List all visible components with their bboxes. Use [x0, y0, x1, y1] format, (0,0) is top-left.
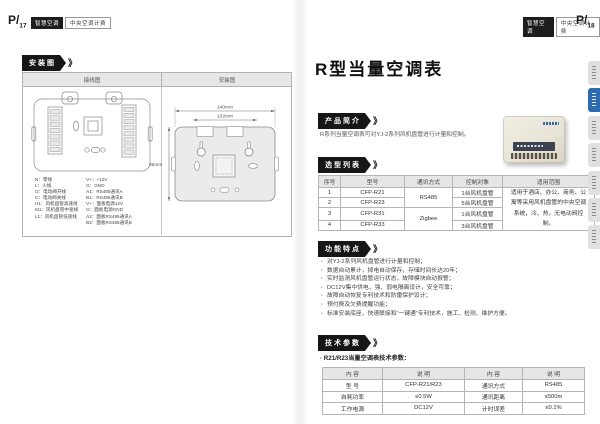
intro-text: R系列当量空调表可对YJ-2系列风机盘管进行计量和控制。: [320, 129, 500, 138]
table-row: 工作电源 DC12V 计时误差 ≤0.1%: [323, 403, 585, 415]
cell-comm: Zigbee: [405, 208, 453, 231]
legend-column-right: V+：+12V G：GND A1：RS485通讯A B1：RS485通讯B V+…: [86, 177, 132, 226]
cell: 工作电源: [323, 403, 383, 415]
side-tab-rail: [588, 61, 600, 249]
feature-item: 标准安装底座，快速联接和“一键通”专利技术，施工、检测、维护方便。: [321, 310, 589, 319]
selection-table: 序号 型号 通讯方式 控制对象 适用范围 1 CFP-R21 RS485 1台风…: [318, 175, 595, 231]
catalog-spread: P/17 智慧空调 中央空调计费 智慧空调 中央空调计费 P/18 安装图 》 …: [0, 0, 600, 424]
cell-model: CFP-R23: [341, 198, 405, 208]
table-row: 1 CFP-R21 RS485 1台风机盘管 适用于酒店、办公、商务、公寓等采用…: [319, 188, 595, 198]
legend-item: L1：风机盘管低速线: [35, 214, 78, 220]
legend-column-left: N：零线 L：火线 O：电动阀开线 C：电动阀关线 H1：风机盘管高速线 M1：…: [35, 177, 78, 226]
side-tab: [588, 198, 600, 222]
chevron-icon: 》: [373, 339, 382, 348]
cell: CFP-R21/R23: [383, 380, 465, 392]
section-tag-selection: 选型列表 》: [318, 157, 382, 173]
col-header: 控制对象: [453, 176, 503, 188]
feature-item: 实时监测风机盘管运行状态，故障模块自动报警；: [321, 275, 589, 284]
right-page-number: P/18: [576, 13, 595, 29]
cell-comm: RS485: [405, 188, 453, 208]
panel-header: 接线图 安装图: [23, 73, 291, 87]
cell-no: 1: [319, 188, 341, 198]
page-label: P/: [576, 13, 587, 27]
wiring-legend: N：零线 L：火线 O：电动阀开线 C：电动阀关线 H1：风机盘管高速线 M1：…: [35, 177, 132, 226]
cell-scope: 适用于酒店、办公、商务、公寓等采用风机盘管的中央空调系统，冷、热，无电动阀控制。: [503, 188, 595, 231]
feature-item: 预付费及欠费提醒功能；: [321, 301, 589, 310]
cell-no: 4: [319, 220, 341, 230]
left-header-badges: 智慧空调 中央空调计费: [31, 17, 111, 29]
specs-subtitle: · R21/R23当量空调表技术参数：: [320, 353, 410, 362]
side-tab: [588, 116, 600, 140]
category-badge: 智慧空调: [523, 17, 554, 37]
section-tag-label: 选型列表: [318, 157, 371, 173]
section-tag-features: 功能特点 》: [318, 241, 382, 257]
chevron-icon: 》: [373, 117, 382, 126]
cell: 自耗功率: [323, 391, 383, 403]
section-tag-label: 技术参数: [318, 335, 371, 351]
cell: RS485: [523, 380, 585, 392]
cell-model: CFP-R33: [341, 220, 405, 230]
section-tag-intro: 产品简介 》: [318, 113, 382, 129]
specs-table: 内 容 说 明 内 容 说 明 型 号 CFP-R21/R23 通讯方式 RS4…: [322, 367, 585, 415]
page-num: 17: [19, 22, 26, 29]
col-header: 内 容: [323, 368, 383, 380]
left-page-number: P/17: [8, 13, 27, 29]
cell-target: 1台风机盘管: [453, 208, 503, 221]
page-label: P/: [8, 13, 19, 27]
section-tag-label: 产品简介: [318, 113, 371, 129]
feature-list: 对YJ-2系列风机盘管进行计量和控制； 数据自动累计，掉电自动保存，存储时间长达…: [321, 258, 589, 318]
section-tag-specs: 技术参数 》: [318, 335, 382, 351]
section-tag-label: 安装图: [22, 55, 66, 71]
svg-text:102mm: 102mm: [217, 114, 233, 120]
terminal-strip: [511, 153, 557, 159]
side-tab: [588, 225, 600, 249]
col-header: 适用范围: [503, 176, 595, 188]
side-tab: [588, 143, 600, 167]
page-title: R型当量空调表: [315, 55, 443, 80]
category-badge: 智慧空调: [31, 17, 63, 29]
panel-col-header: 安装图: [162, 73, 292, 86]
wiring-diagram: [31, 90, 153, 181]
product-nameplate: [513, 142, 555, 151]
table-header-row: 内 容 说 明 内 容 说 明: [323, 368, 585, 380]
chevron-icon: 》: [68, 59, 77, 68]
svg-text:86mm: 86mm: [149, 162, 162, 168]
chevron-icon: 》: [373, 161, 382, 170]
cell-model: CFP-R31: [341, 208, 405, 221]
chevron-icon: 》: [373, 245, 382, 254]
feature-item: DC12V集中供电，强、弱电隔离设计，安全可靠；: [321, 284, 589, 293]
section-tag-installation: 安装图 》: [22, 55, 77, 71]
side-tab: [588, 171, 600, 195]
svg-text:140mm: 140mm: [217, 105, 233, 111]
mounting-diagram: 140mm 102mm 86mm: [149, 93, 289, 220]
cell-target: 5台风机盘管: [453, 198, 503, 208]
cell: ≤0.1%: [523, 403, 585, 415]
installation-panel: 接线图 安装图: [22, 72, 292, 237]
table-row: 自耗功率 ≤0.5W 通讯距离 ≤500m: [323, 391, 585, 403]
legend-item: B2：面板RS485通讯B: [86, 220, 132, 226]
cell-target: 1台风机盘管: [453, 188, 503, 198]
cell: 计时误差: [465, 403, 523, 415]
feature-item: 数据自动累计，掉电自动保存，存储时间长达20年；: [321, 267, 589, 276]
cell: 通讯距离: [465, 391, 523, 403]
cell: ≤0.5W: [383, 391, 465, 403]
feature-item: 故障自动恢复专利技术和防雷保护设计；: [321, 292, 589, 301]
page-num: 18: [587, 22, 594, 29]
col-header: 型号: [341, 176, 405, 188]
cell-target: 3台风机盘管: [453, 220, 503, 230]
table-row: 型 号 CFP-R21/R23 通讯方式 RS485: [323, 380, 585, 392]
side-tab-active: [588, 88, 600, 112]
product-photo: [503, 116, 565, 163]
page-fold: [291, 0, 309, 424]
col-header: 序号: [319, 176, 341, 188]
col-header: 内 容: [465, 368, 523, 380]
cell: DC12V: [383, 403, 465, 415]
cell-model: CFP-R21: [341, 188, 405, 198]
cell: ≤500m: [523, 391, 585, 403]
section-tag-label: 功能特点: [318, 241, 371, 257]
table-header-row: 序号 型号 通讯方式 控制对象 适用范围: [319, 176, 595, 188]
cell: 型 号: [323, 380, 383, 392]
cell-no: 2: [319, 198, 341, 208]
feature-item: 对YJ-2系列风机盘管进行计量和控制；: [321, 258, 589, 267]
cell: 通讯方式: [465, 380, 523, 392]
col-header: 通讯方式: [405, 176, 453, 188]
subcategory-badge: 中央空调计费: [65, 17, 111, 29]
col-header: 说 明: [383, 368, 465, 380]
cell-no: 3: [319, 208, 341, 221]
col-header: 说 明: [523, 368, 585, 380]
panel-col-header: 接线图: [23, 73, 162, 86]
brand-logo: [543, 122, 559, 125]
side-tab: [588, 61, 600, 85]
